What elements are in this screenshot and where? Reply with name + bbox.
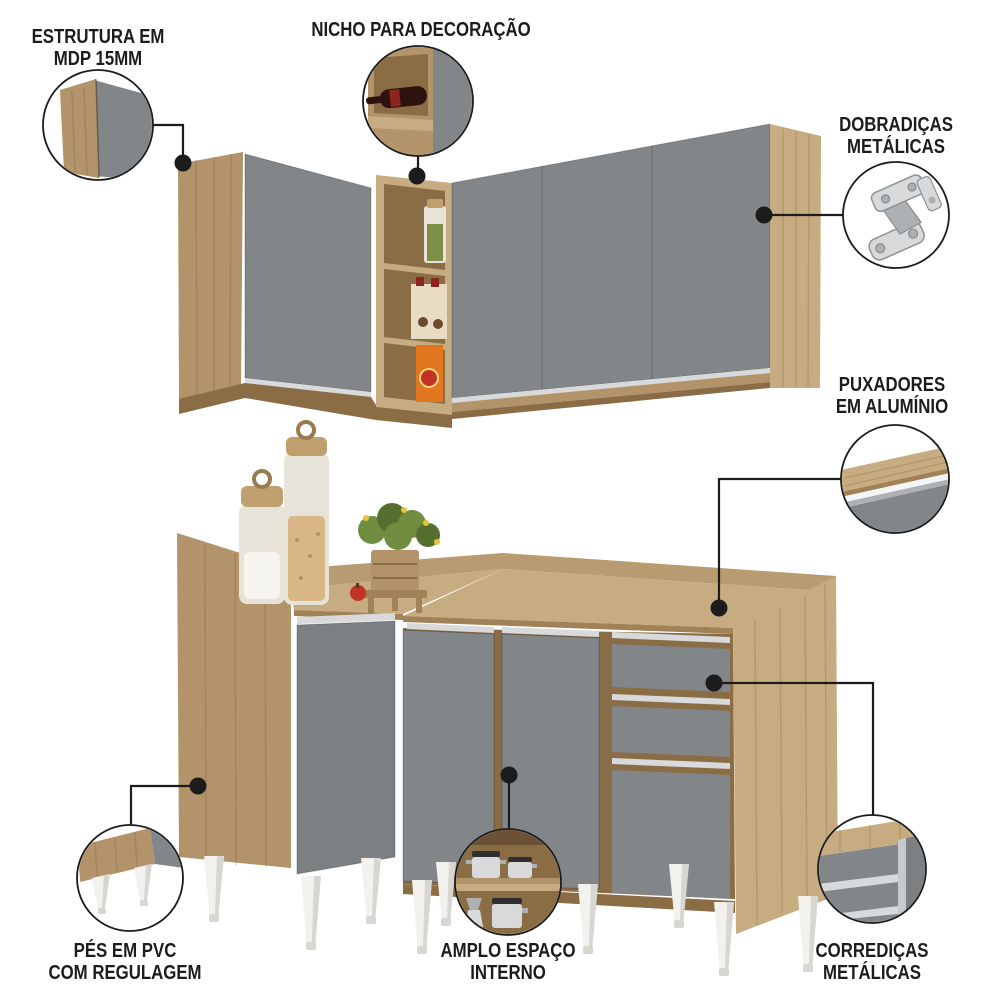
callout-label-line: CORREDIÇAS bbox=[816, 940, 929, 962]
dot-pes bbox=[190, 778, 207, 795]
drawer-2 bbox=[612, 706, 730, 757]
callout-label-line: PÉS EM PVC bbox=[48, 940, 201, 962]
inset-dobradicas bbox=[843, 162, 952, 268]
callout-label-line: NICHO PARA DECORAÇÃO bbox=[311, 19, 530, 41]
dot-amplo bbox=[501, 767, 518, 784]
corner-door bbox=[297, 621, 395, 874]
inset-puxadores bbox=[841, 425, 950, 535]
cabinet-foot bbox=[714, 902, 734, 976]
inset-estrutura bbox=[43, 70, 153, 180]
callout-label-line: METÁLICAS bbox=[816, 962, 929, 984]
inset-pes bbox=[77, 825, 184, 931]
panel-edge-icon bbox=[60, 79, 153, 180]
callout-label-line: ESTRUTURA EM bbox=[32, 26, 165, 48]
inset-nicho bbox=[363, 45, 475, 157]
cabinet-foot bbox=[361, 858, 381, 924]
inset-amplo bbox=[455, 829, 563, 937]
callout-label-line: COM REGULAGEM bbox=[48, 962, 201, 984]
callout-label-nicho: NICHO PARA DECORAÇÃO bbox=[290, 19, 551, 41]
callout-label-dobradicas: DOBRADIÇAS METÁLICAS bbox=[828, 114, 964, 158]
callout-label-line: METÁLICAS bbox=[839, 136, 953, 158]
dot-puxadores bbox=[711, 600, 728, 617]
upper-left-door bbox=[245, 154, 371, 392]
cabinet-foot bbox=[301, 876, 321, 950]
orange-box bbox=[416, 345, 443, 402]
dot-nicho bbox=[409, 168, 426, 185]
mini-stool bbox=[363, 590, 427, 613]
dot-dobradicas bbox=[756, 207, 773, 224]
callout-label-pes: PÉS EM PVC COM REGULAGEM bbox=[34, 940, 216, 984]
dot-corredicas bbox=[706, 675, 723, 692]
callout-label-amplo: AMPLO ESPAÇO INTERNO bbox=[428, 940, 589, 984]
upper-cabinet bbox=[178, 124, 821, 428]
cabinet-foot bbox=[204, 856, 224, 922]
cereal-box bbox=[411, 277, 447, 339]
callout-label-puxadores: PUXADORES EM ALUMÍNIO bbox=[825, 374, 959, 418]
callout-label-line: DOBRADIÇAS bbox=[839, 114, 953, 136]
oats-jar bbox=[284, 422, 329, 605]
flour-jar bbox=[239, 471, 285, 604]
upper-left-side-panel bbox=[178, 152, 243, 400]
callout-label-line: MDP 15MM bbox=[32, 48, 165, 70]
inset-corredicas bbox=[818, 815, 928, 925]
dot-estrutura bbox=[175, 155, 192, 172]
callout-label-corredicas: CORREDIÇAS METÁLICAS bbox=[805, 940, 939, 984]
callout-label-line: AMPLO ESPAÇO bbox=[440, 940, 575, 962]
callout-label-line: EM ALUMÍNIO bbox=[836, 396, 948, 418]
callout-label-line: INTERNO bbox=[440, 962, 575, 984]
wine-niche-icon bbox=[365, 45, 475, 157]
callout-label-estrutura: ESTRUTURA EM MDP 15MM bbox=[19, 26, 177, 70]
callout-label-line: PUXADORES bbox=[836, 374, 948, 396]
upper-right-doors bbox=[452, 124, 770, 398]
